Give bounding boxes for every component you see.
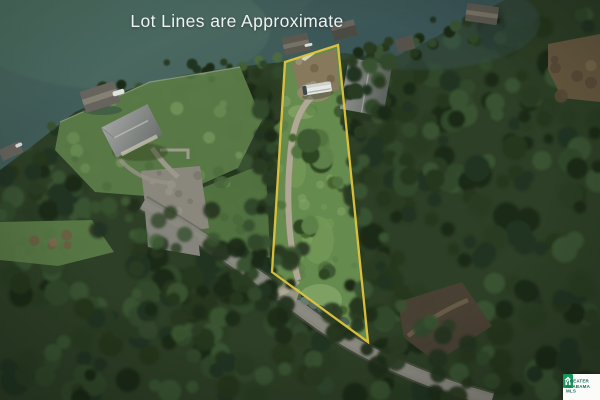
photo-caption: Lot Lines are Approximate <box>130 11 343 32</box>
mls-watermark: GREATER ALABAMA MLS <box>563 374 600 400</box>
aerial-photo-canvas <box>0 0 600 400</box>
mls-watermark-line: MLS <box>566 390 590 395</box>
aerial-lot-photo: Lot Lines are Approximate GREATER ALABAM… <box>0 0 600 400</box>
